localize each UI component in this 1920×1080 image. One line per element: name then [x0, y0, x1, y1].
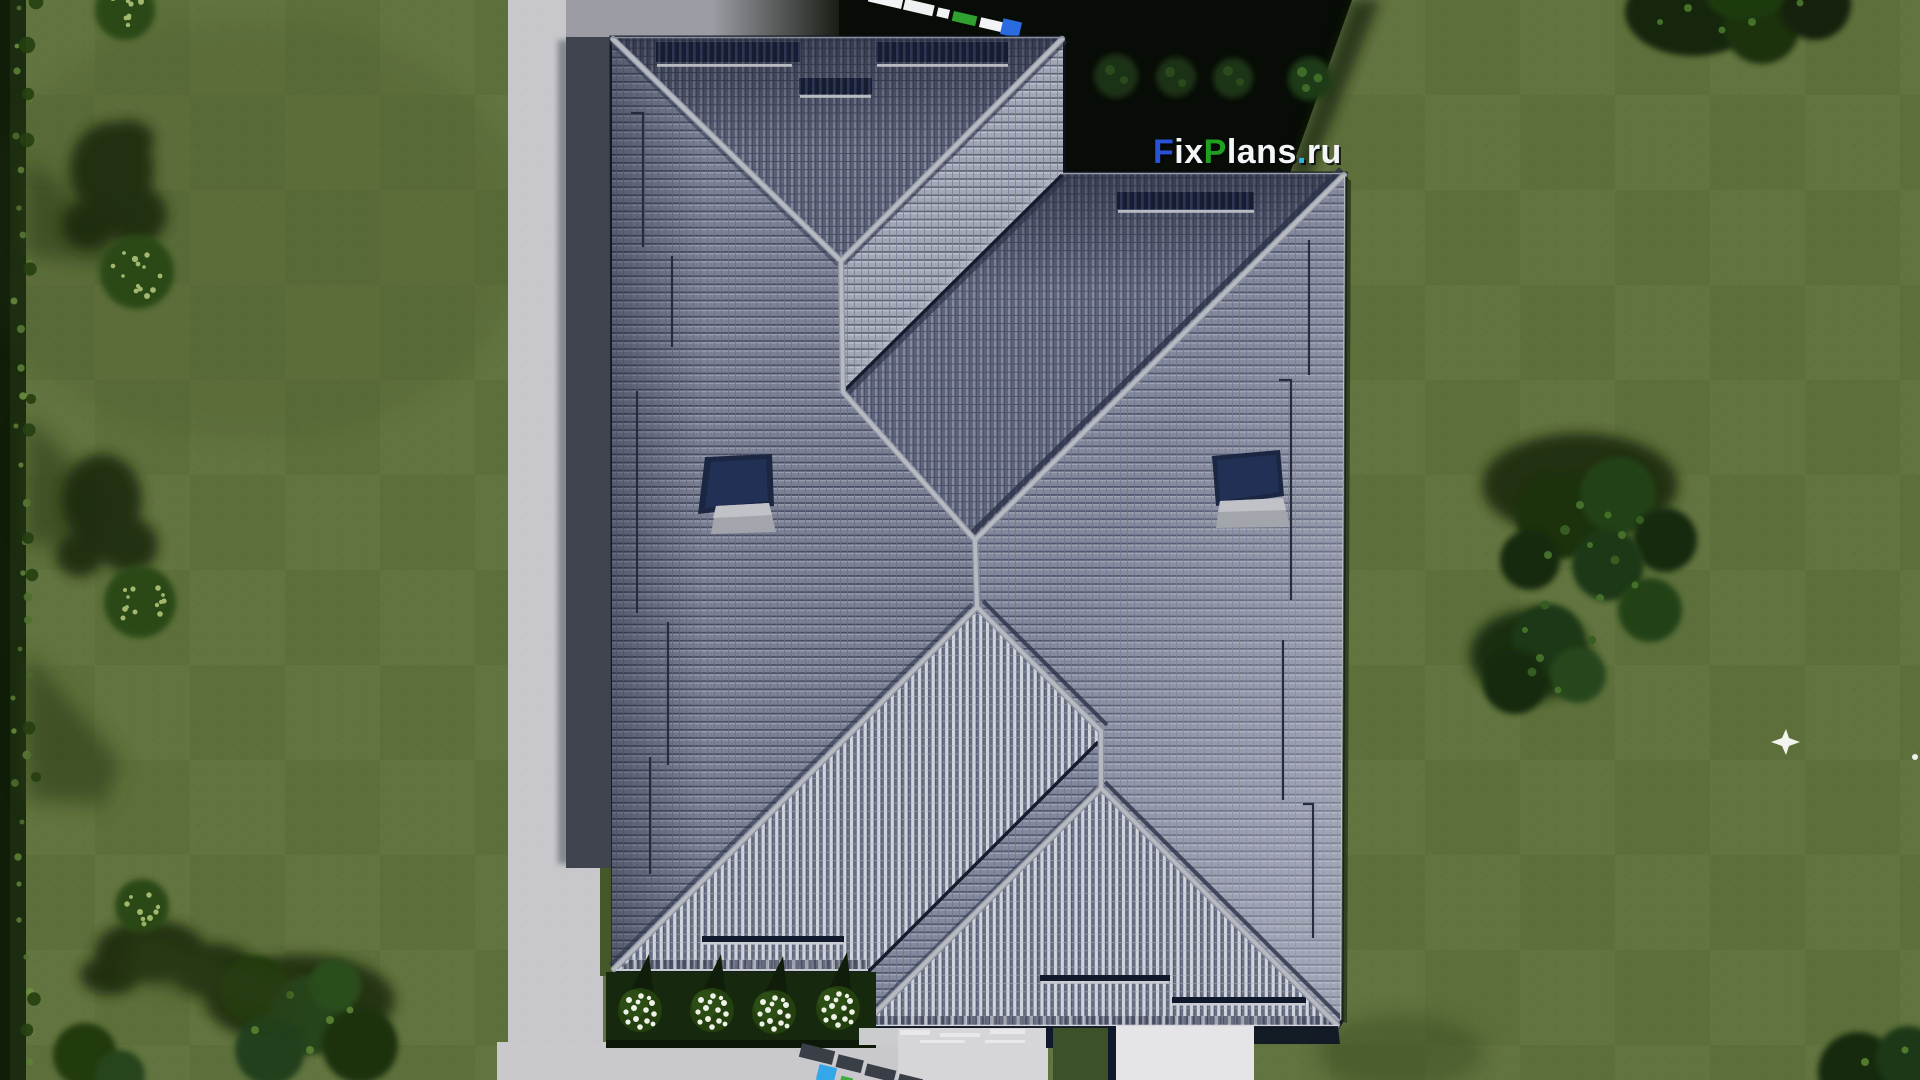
svg-text:FixPlans.ru: FixPlans.ru [1153, 133, 1342, 171]
